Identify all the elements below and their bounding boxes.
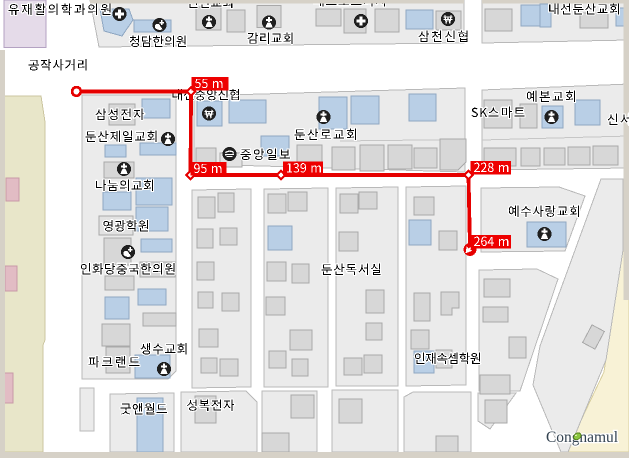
svg-text:Congnamul: Congnamul xyxy=(546,429,618,446)
